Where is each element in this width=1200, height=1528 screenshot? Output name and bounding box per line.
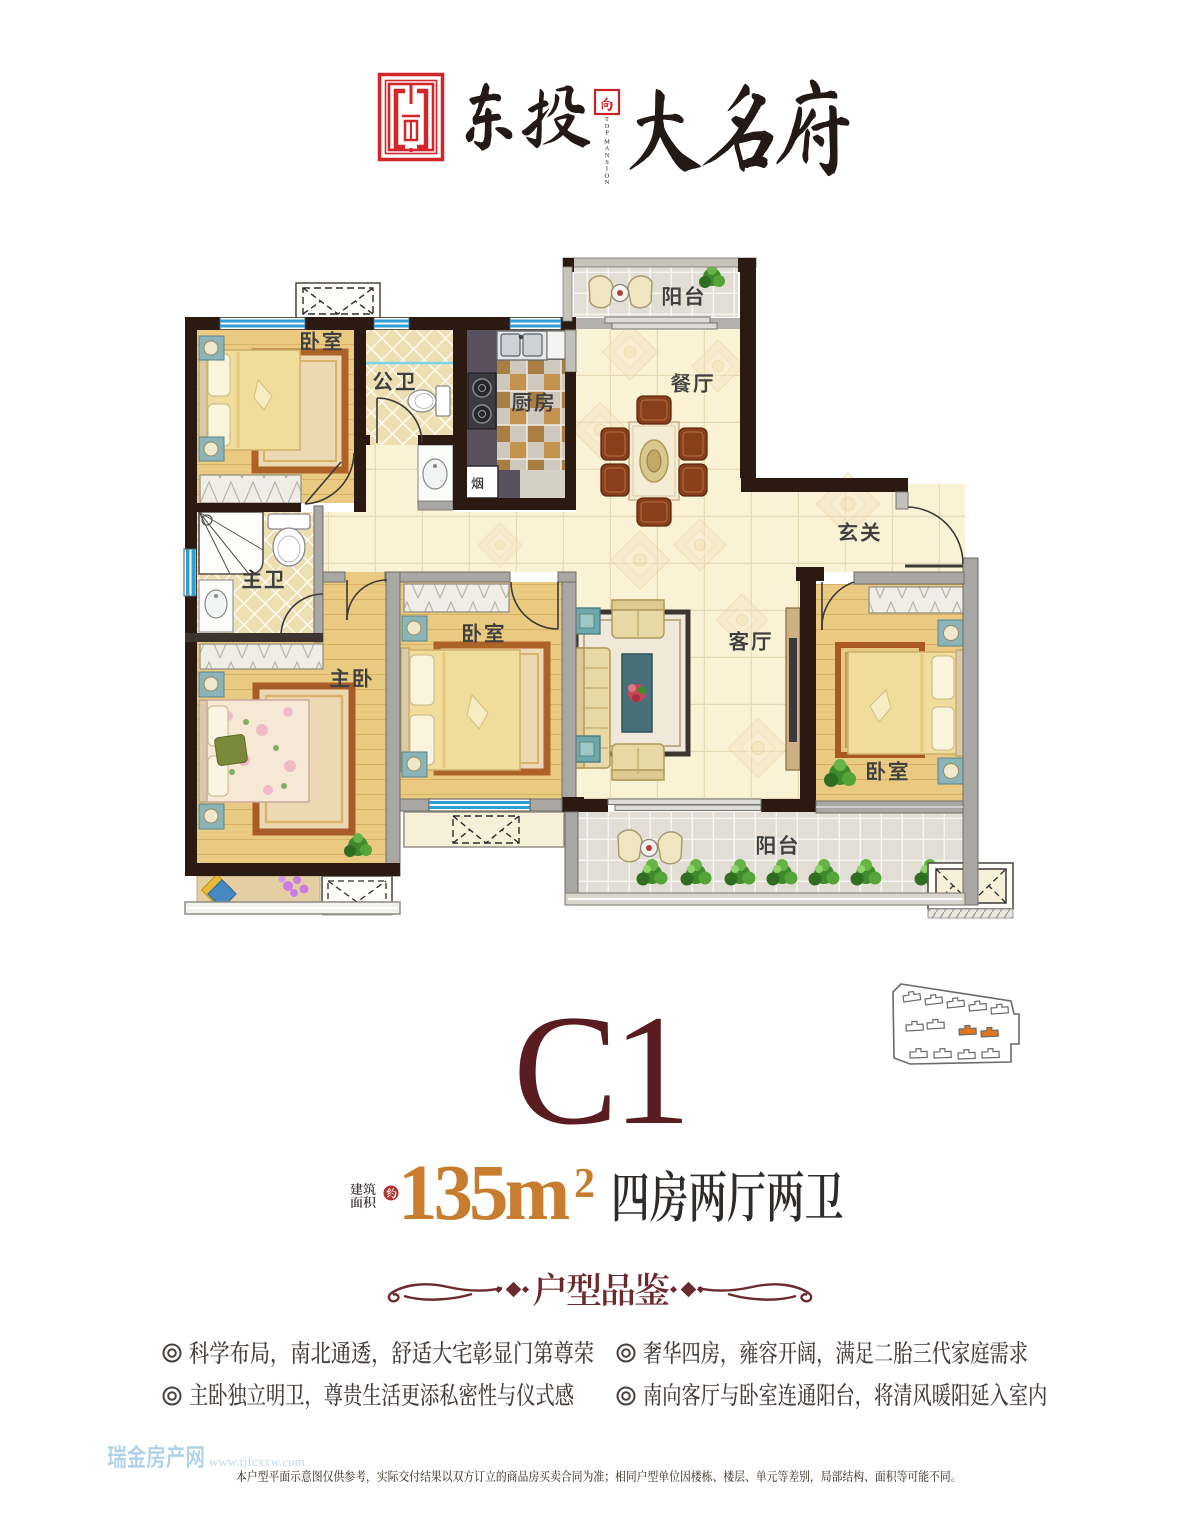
svg-text:135m: 135m [398,1150,570,1237]
svg-text:N: N [605,179,610,186]
svg-text:www.rjfcxxw.com: www.rjfcxxw.com [209,1454,305,1469]
svg-text:P: P [605,130,609,137]
svg-text:C1: C1 [513,983,685,1158]
svg-text:2: 2 [574,1161,595,1207]
